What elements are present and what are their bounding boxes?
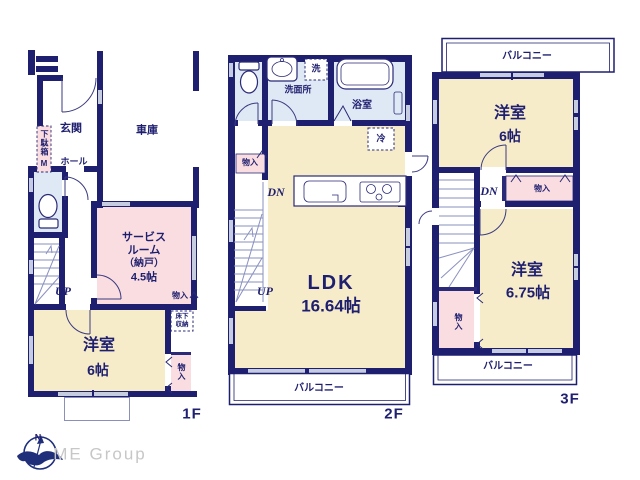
porch-outline-1f xyxy=(65,398,130,421)
refrigerator-label: 冷 xyxy=(376,135,385,144)
washroom-label: 洗面所 xyxy=(284,86,311,95)
bathroom-label: 浴室 xyxy=(352,101,372,111)
floor-label-2f: 2F xyxy=(384,407,404,422)
stairs-3f xyxy=(439,180,474,287)
company-logo-text: ME Group xyxy=(53,446,146,463)
room-fills-2f xyxy=(234,61,407,368)
compass-north-label: N xyxy=(35,434,42,443)
ldk-size-label: 16.64帖 xyxy=(301,298,361,315)
balcony-label-2f: バルコニー xyxy=(294,384,344,394)
floor-plan-2f xyxy=(228,55,428,405)
western-room-a-label: 洋室 xyxy=(494,106,526,122)
balcony-bottom-label-3f: バルコニー xyxy=(483,362,533,372)
closet-a-label-3f: 物入 xyxy=(534,185,550,193)
western-room-b-label: 洋室 xyxy=(511,263,543,279)
stairs-down-label-2f: DN xyxy=(267,186,284,198)
laundry-label: 洗 xyxy=(311,65,320,74)
underfloor-label-2: 収納 xyxy=(176,322,189,329)
closet-b-label-1f: 物入 xyxy=(177,363,185,381)
ldk-label: LDK xyxy=(307,273,354,293)
floor-label-3f: 3F xyxy=(560,392,580,407)
floor-plan-1f xyxy=(28,50,199,421)
kitchen-counter xyxy=(294,176,406,206)
western-room-b-size: 6.75帖 xyxy=(506,286,550,301)
balcony-top-label-3f: バルコニー xyxy=(502,52,552,62)
service-room-label-3: （納戸） xyxy=(124,259,164,269)
western-room-size-1f: 6帖 xyxy=(87,363,109,377)
closet-a-label-1f: 物入 xyxy=(172,292,188,300)
service-room-size: 4.5帖 xyxy=(131,273,157,284)
toilet-icon-1f xyxy=(39,195,57,218)
toilet-icon-2f xyxy=(239,62,259,70)
stairs-up-label-1f: UP xyxy=(55,285,71,297)
western-room-label-1f: 洋室 xyxy=(83,338,115,354)
shoe-cabinet-m-label: M xyxy=(41,160,48,168)
floor-plan-3f xyxy=(419,39,614,385)
underfloor-label-1: 床下 xyxy=(176,314,189,321)
floor-label-1f: 1F xyxy=(182,407,202,422)
floor-plan-page: 玄関 車庫 下駄箱 M ホール サービス ルーム （納戸） 4.5帖 UP 物入… xyxy=(0,0,640,480)
garage-label: 車庫 xyxy=(136,126,158,137)
service-room-label-2: ルーム xyxy=(128,246,161,257)
stairs-down-label-3f: DN xyxy=(480,185,497,197)
service-room-label-1: サービス xyxy=(122,233,166,244)
closet-label-2f: 物入 xyxy=(242,159,258,167)
washbasin-icon xyxy=(267,57,297,81)
entrance-label: 玄関 xyxy=(60,124,82,135)
stairs-up-label-2f: UP xyxy=(257,285,273,297)
shoe-cabinet-label: 下駄箱 xyxy=(40,130,48,157)
closet-b-label-3f: 物入 xyxy=(454,313,462,331)
western-room-a-size: 6帖 xyxy=(499,129,521,143)
hall-label: ホール xyxy=(60,158,87,167)
